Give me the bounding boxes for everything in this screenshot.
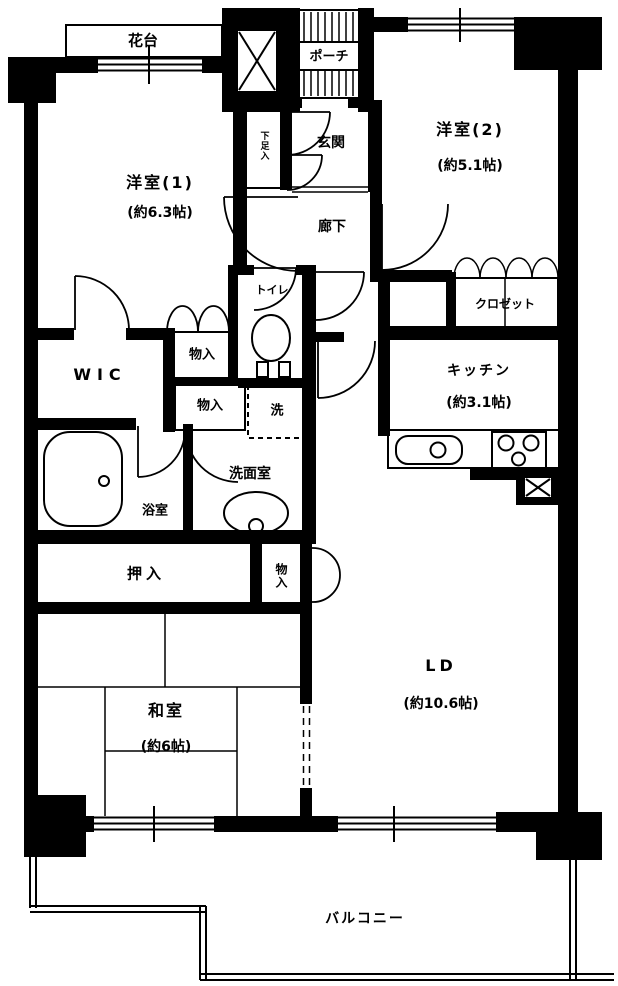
japanese-room-window <box>94 806 216 842</box>
hallway-door <box>316 272 364 320</box>
label-living-dining-size: (約10.6帖) <box>403 697 478 711</box>
pipe-shaft-x-box-icon <box>524 477 552 498</box>
genkan-step-line <box>292 187 368 192</box>
kitchen-counter <box>388 430 560 468</box>
storage-1-double-doors <box>167 306 229 332</box>
floorplan-drawing <box>0 0 618 986</box>
label-washroom: 洗面室 <box>229 467 271 481</box>
living-dining-window <box>338 806 498 842</box>
wic-door <box>75 276 129 330</box>
label-storage-2: 物入 <box>197 400 223 413</box>
bathtub-icon <box>44 432 122 526</box>
label-genkan: 玄関 <box>317 136 345 150</box>
western-room-2-door <box>382 204 448 270</box>
label-shoe-box: 下足入 <box>259 131 268 161</box>
label-balcony: バルコニー <box>325 912 405 926</box>
label-wic: WIC <box>73 367 126 383</box>
label-oshiire: 押入 <box>127 567 165 582</box>
label-kitchen-size: (約3.1帖) <box>446 396 512 410</box>
bathroom-door <box>138 426 185 477</box>
walls <box>8 8 602 860</box>
hanadai-window <box>93 46 205 84</box>
western-room-2-window <box>404 8 516 42</box>
label-porch: ポーチ <box>309 51 348 64</box>
stove-icon <box>492 432 546 468</box>
label-japanese-room: 和室 <box>148 703 184 719</box>
shaft-x-box-icon <box>237 30 277 92</box>
floor-plan: 花台 ポーチ 下足入 玄関 廊下 洋室(1) (約6.3帖) 洋室(2) (約5… <box>0 0 618 986</box>
label-storage-1: 物入 <box>189 349 215 362</box>
closet-folding-doors <box>454 258 558 278</box>
label-hallway: 廊下 <box>318 220 346 234</box>
label-western-room-2: 洋室(2) <box>436 122 504 138</box>
living-dining-door <box>318 340 375 398</box>
label-storage-3: 物入 <box>275 563 287 589</box>
entrance-door <box>287 112 330 190</box>
label-japanese-room-size: (約6帖) <box>141 740 192 754</box>
closet-box <box>452 258 558 328</box>
sink-icon <box>396 436 462 464</box>
label-living-dining: LD <box>425 658 456 674</box>
label-western-room-1-size: (約6.3帖) <box>127 206 193 220</box>
label-western-room-1: 洋室(1) <box>126 175 194 191</box>
washbasin-icon <box>224 492 288 534</box>
balcony-railing <box>30 857 614 980</box>
label-western-room-2-size: (約5.1帖) <box>437 159 503 173</box>
label-toilet: トイレ <box>256 285 289 296</box>
label-kitchen: キッチン <box>447 364 511 378</box>
label-washer: 洗 <box>270 405 283 418</box>
label-closet: クロゼット <box>475 298 535 310</box>
sliding-door-dashes <box>304 706 310 786</box>
label-bathroom: 浴室 <box>142 505 168 518</box>
label-hanadai: 花台 <box>128 34 158 49</box>
toilet-icon <box>252 315 290 377</box>
storage-3-double-doors <box>312 548 340 602</box>
